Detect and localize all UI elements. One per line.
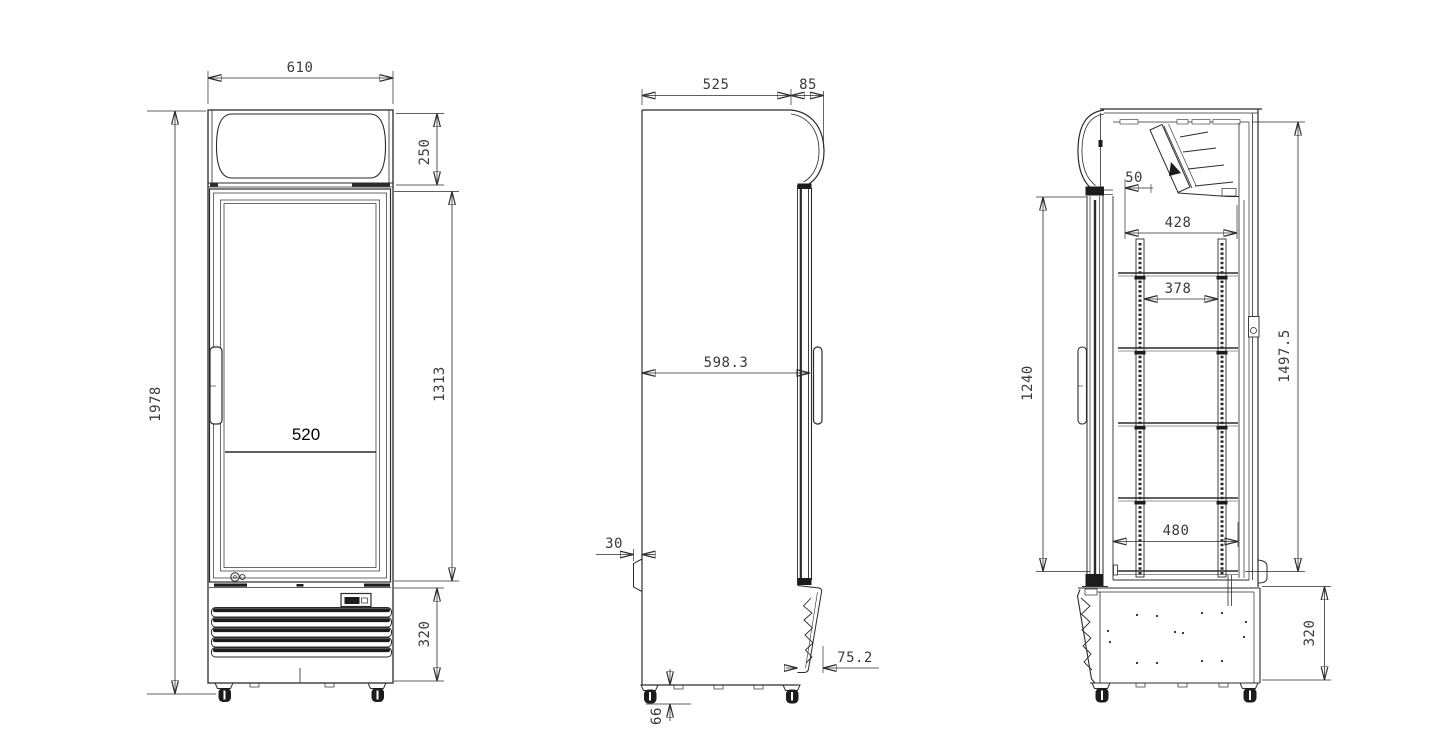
- dim-label: 1497.5: [1277, 329, 1293, 383]
- section-caster-left: [1092, 683, 1110, 703]
- dim-label: 50: [1125, 170, 1143, 186]
- dim-label: 480: [1163, 523, 1190, 539]
- side-caster-right: [783, 685, 800, 704]
- latch-keeper: [1249, 317, 1260, 338]
- dim-front-overall-height: 1978: [147, 111, 216, 694]
- section-door-top-hinge: [1086, 187, 1105, 196]
- louver-slats: [212, 608, 392, 658]
- dim-label: 320: [417, 621, 433, 648]
- side-canopy: [791, 110, 824, 186]
- section-view: 50 428 378 480 1240 1497.5: [1020, 109, 1331, 703]
- dim-label: 1978: [148, 386, 164, 422]
- dim-label: 610: [287, 60, 314, 76]
- dim-side-rear-spacer: 30: [596, 536, 655, 561]
- dim-label: 525: [703, 77, 730, 93]
- dim-front-overall-width: 610: [208, 60, 393, 104]
- dim-label: 1313: [432, 366, 448, 402]
- dim-label: 428: [1165, 215, 1192, 231]
- shelf-rail-right: [1218, 239, 1226, 577]
- dim-label: 30: [605, 536, 623, 552]
- rear-spacer-bracket: [634, 559, 643, 592]
- drawing-svg: 610 250 1313 1978 320 520: [0, 0, 1446, 740]
- dim-label: 1240: [1020, 365, 1036, 401]
- dim-front-canopy-height: 250: [396, 114, 444, 186]
- technical-drawing: 610 250 1313 1978 320 520: [0, 0, 1446, 740]
- dim-side-grille-depth: 75.2: [786, 646, 879, 673]
- dim-label: 320: [1302, 620, 1318, 647]
- section-door-bottom-hinge: [1086, 574, 1104, 586]
- controller-display: [345, 597, 360, 604]
- dim-label: 378: [1165, 281, 1192, 297]
- door-handle-section: [1078, 347, 1087, 424]
- front-caster-left: [215, 683, 233, 702]
- machine-compartment: [1078, 560, 1268, 687]
- shelf-rail-left: [1136, 239, 1144, 577]
- dim-section-top-gap: 50: [1125, 170, 1153, 239]
- dim-label: 85: [799, 77, 817, 93]
- section-door: [1078, 187, 1108, 587]
- door-handle-side: [814, 347, 823, 424]
- dim-section-rail-span: 378: [1144, 281, 1218, 299]
- section-caster-right: [1240, 683, 1258, 703]
- side-door-top-hinge: [798, 184, 812, 190]
- dim-label: 66: [649, 707, 665, 725]
- side-front-grille: [798, 586, 822, 673]
- dim-section-interior-height: 1497.5: [1245, 122, 1305, 572]
- section-canopy: [1078, 110, 1113, 195]
- temperature-controller: [341, 594, 371, 607]
- evaporator-unit: [1150, 124, 1239, 197]
- shelf-width-label: 520: [292, 425, 320, 444]
- front-caster-right: [368, 683, 386, 702]
- dim-side-body-depth: 525: [642, 77, 791, 105]
- dim-section-compartment-height: 320: [1262, 587, 1331, 681]
- dim-side-door-depth: 85: [791, 77, 824, 148]
- dim-label: 75.2: [837, 650, 873, 666]
- dim-label: 250: [417, 139, 433, 166]
- section-ceiling: [1113, 120, 1249, 125]
- dim-front-base-height: 320: [394, 588, 444, 681]
- dim-label: 598.3: [704, 355, 749, 371]
- section-front-louver: [1078, 589, 1101, 683]
- dim-side-overall-depth: 598.3: [642, 355, 810, 373]
- side-view: 525 85 598.3 30 75.2 66: [596, 77, 879, 725]
- door-handle: [210, 347, 222, 424]
- dim-section-recess-width: 428: [1125, 205, 1237, 239]
- side-door: [798, 184, 823, 586]
- front-view: 610 250 1313 1978 320 520: [147, 60, 459, 702]
- side-caster-left: [641, 685, 658, 704]
- dim-front-door-height: 1313: [394, 192, 459, 582]
- side-door-bottom-hinge: [798, 578, 812, 585]
